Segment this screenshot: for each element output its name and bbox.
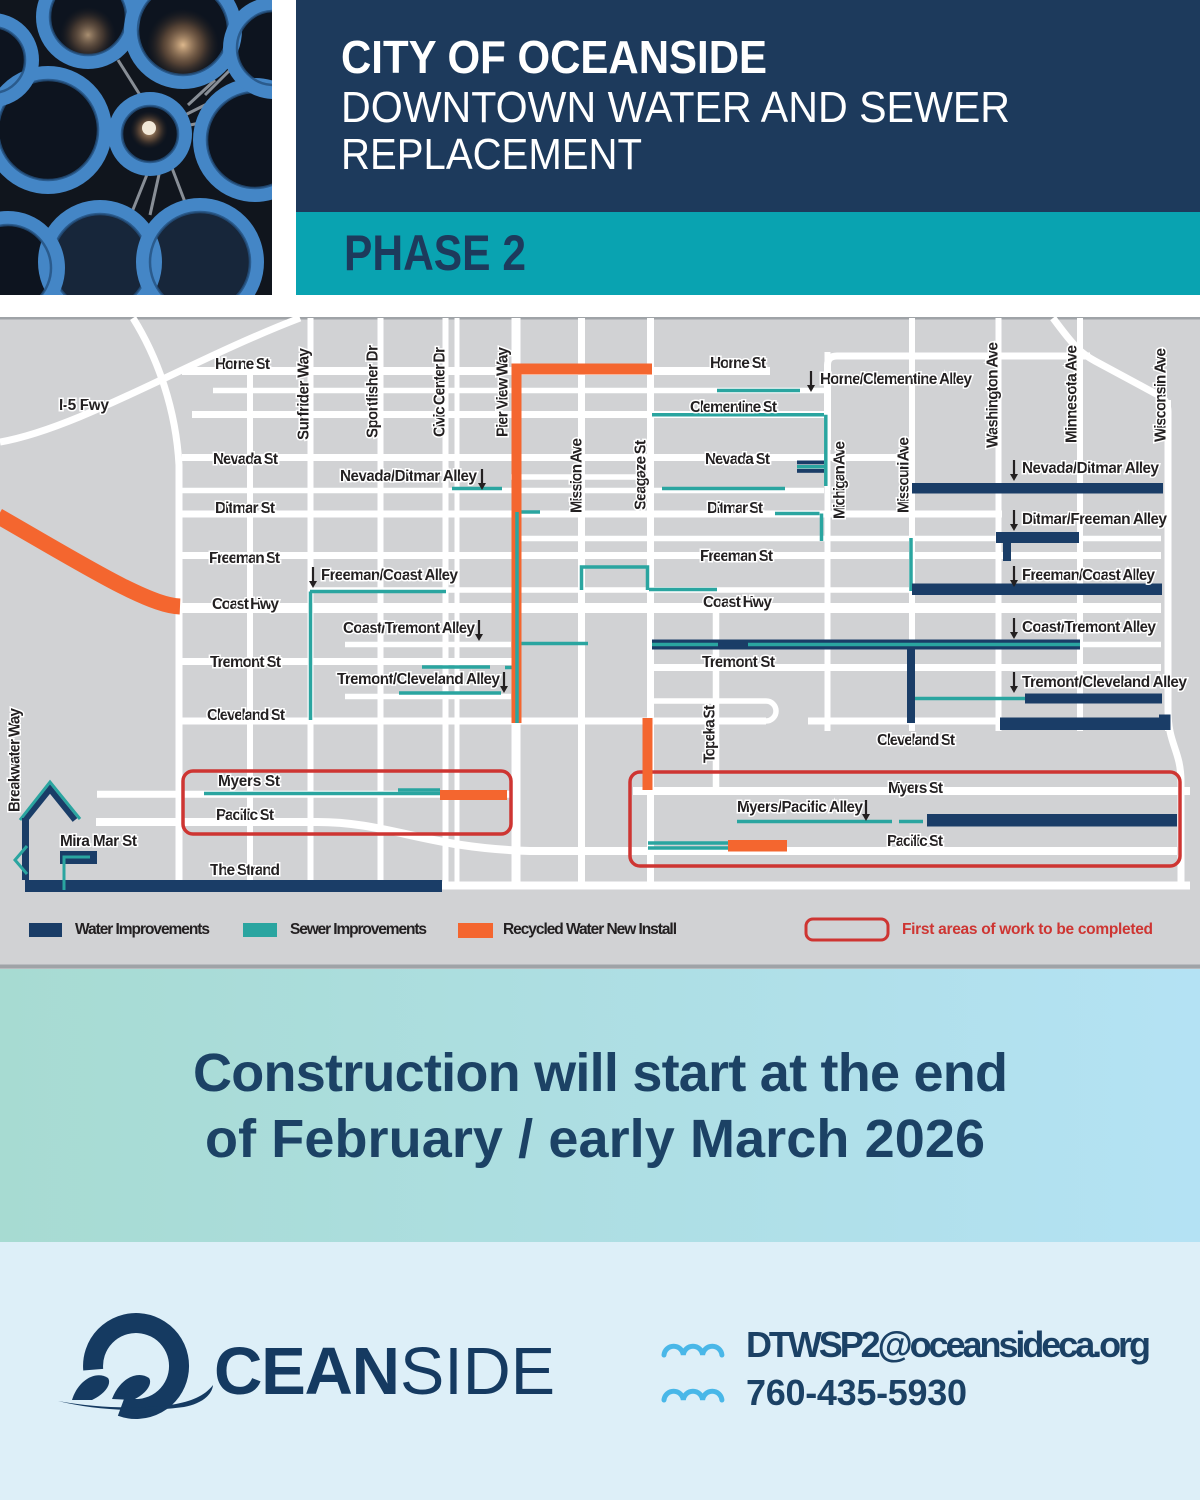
svg-text:Coast/Tremont Alley: Coast/Tremont Alley [1022,619,1156,636]
svg-text:Michigan Ave: Michigan Ave [832,441,849,519]
svg-text:Cleveland St: Cleveland St [877,732,955,749]
svg-text:Construction will start at the: Construction will start at the end [193,1043,1008,1103]
svg-text:REPLACEMENT: REPLACEMENT [341,130,642,179]
svg-text:Seagaze St: Seagaze St [633,440,650,510]
svg-text:Ditmar St: Ditmar St [215,500,275,517]
svg-text:Mission Ave: Mission Ave [569,438,586,513]
svg-text:Pacific St: Pacific St [887,833,943,850]
svg-text:Coast Hwy: Coast Hwy [212,596,279,613]
svg-text:Tremont St: Tremont St [702,654,775,671]
svg-text:Horne St: Horne St [215,356,270,373]
svg-text:Nevada/Ditmar Alley: Nevada/Ditmar Alley [1022,460,1159,477]
svg-text:Clementine St: Clementine St [690,399,777,416]
svg-text:Tremont/Cleveland Alley: Tremont/Cleveland Alley [1022,674,1187,691]
svg-text:Ditmar/Freeman Alley: Ditmar/Freeman Alley [1022,511,1167,528]
svg-text:Coast Hwy: Coast Hwy [703,594,772,611]
svg-text:PHASE 2: PHASE 2 [344,225,526,281]
svg-text:Nevada St: Nevada St [705,451,770,468]
svg-text:I-5 Fwy: I-5 Fwy [59,397,109,414]
svg-text:760-435-5930: 760-435-5930 [746,1372,967,1413]
svg-text:Recycled Water New Install: Recycled Water New Install [503,921,677,938]
svg-text:Wisconsin Ave: Wisconsin Ave [1153,348,1170,442]
svg-text:Horne St: Horne St [710,355,766,372]
svg-text:SIDE: SIDE [400,1334,555,1409]
svg-text:Surfrider Way: Surfrider Way [296,348,313,440]
svg-text:The Strand: The Strand [210,862,280,879]
svg-text:Water Improvements: Water Improvements [75,921,210,938]
svg-text:Cleveland St: Cleveland St [207,707,285,724]
svg-text:DOWNTOWN WATER AND SEWER: DOWNTOWN WATER AND SEWER [341,83,1010,132]
svg-text:CITY OF OCEANSIDE: CITY OF OCEANSIDE [341,31,767,83]
svg-text:Tremont/Cleveland Alley: Tremont/Cleveland Alley [337,671,500,688]
svg-text:Sewer Improvements: Sewer Improvements [290,921,427,938]
svg-text:Minnesota Ave: Minnesota Ave [1064,345,1081,443]
svg-text:Missouri Ave: Missouri Ave [896,437,913,513]
svg-text:Freeman St: Freeman St [700,548,773,565]
svg-text:Horne/Clementine Alley: Horne/Clementine Alley [820,371,972,388]
svg-text:CEAN: CEAN [214,1334,400,1409]
svg-text:Nevada St: Nevada St [213,451,278,468]
svg-text:Nevada/Ditmar Alley: Nevada/Ditmar Alley [340,468,477,485]
svg-text:Tremont St: Tremont St [210,654,281,671]
svg-text:DTWSP2@oceansideca.org: DTWSP2@oceansideca.org [746,1324,1151,1365]
svg-text:Freeman/Coast Alley: Freeman/Coast Alley [321,567,458,584]
svg-text:Civic Center Dr: Civic Center Dr [432,347,449,437]
svg-text:Pacific St: Pacific St [216,807,274,824]
svg-text:Myers St: Myers St [888,780,943,797]
svg-text:Topeka St: Topeka St [702,705,719,763]
svg-text:Coast/Tremont Alley: Coast/Tremont Alley [343,620,475,637]
svg-text:Sportfisher Dr: Sportfisher Dr [365,345,382,438]
svg-text:Myers/Pacific Alley: Myers/Pacific Alley [737,799,863,816]
svg-text:Ditmar St: Ditmar St [707,500,763,517]
svg-text:Myers St: Myers St [218,773,280,790]
svg-text:Pier View Way: Pier View Way [495,347,512,437]
svg-text:Breakwater Way: Breakwater Way [7,708,24,812]
svg-text:Freeman/Coast Alley: Freeman/Coast Alley [1022,567,1155,584]
svg-text:Freeman St: Freeman St [209,550,280,567]
svg-text:Mira Mar St: Mira Mar St [60,833,137,850]
svg-text:First areas of work to be comp: First areas of work to be completed [902,921,1153,938]
svg-text:of February / early March 2026: of February / early March 2026 [205,1109,985,1169]
svg-text:Washington Ave: Washington Ave [985,342,1002,448]
